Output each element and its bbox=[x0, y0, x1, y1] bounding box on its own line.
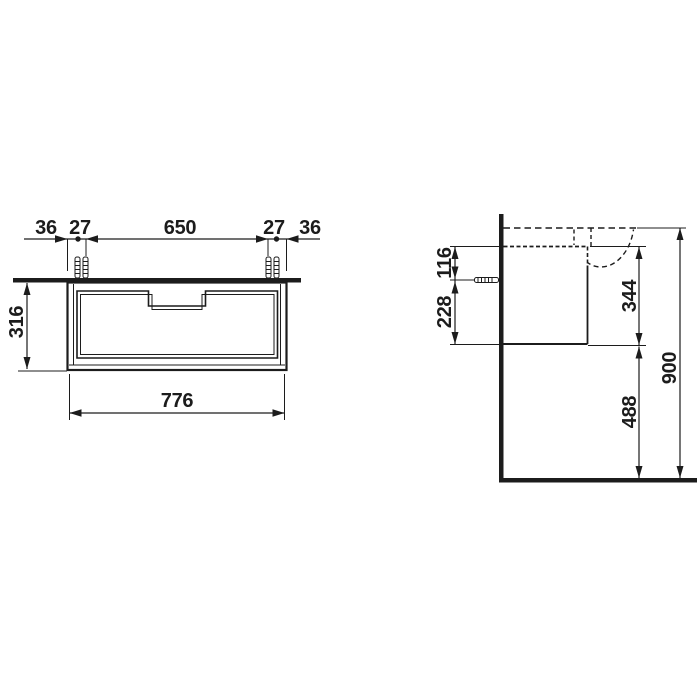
front-view: 36 27 650 27 36 bbox=[6, 217, 321, 420]
wall-anchor-screw-icon bbox=[475, 278, 499, 283]
dim-label-floor-clearance: 488 bbox=[619, 396, 641, 429]
mounting-screws-icon bbox=[75, 257, 279, 278]
dim-label-offset-right: 36 bbox=[299, 217, 321, 239]
body-and-clearance-dimensions: 344 488 bbox=[588, 247, 646, 479]
height-dimension: 316 bbox=[6, 283, 67, 371]
dim-label-offset-left: 36 bbox=[35, 217, 57, 239]
screw-icon bbox=[274, 257, 279, 278]
plug-axis-dot-right bbox=[274, 236, 279, 241]
technical-drawing-canvas: 36 27 650 27 36 bbox=[0, 0, 700, 700]
cabinet-side-profile bbox=[504, 247, 588, 345]
wall-line bbox=[499, 214, 504, 483]
dim-label-plug-gap-right: 27 bbox=[263, 217, 285, 239]
plug-axis-dot-left bbox=[75, 236, 80, 241]
screw-icon bbox=[75, 257, 80, 278]
overall-height-dimension: 900 bbox=[637, 228, 686, 478]
dim-label-height: 316 bbox=[6, 306, 28, 339]
width-dimension: 776 bbox=[70, 374, 285, 420]
dim-label-screw-from-top: 116 bbox=[434, 247, 456, 279]
screw-icon bbox=[83, 257, 88, 278]
dim-label-plug-gap-left: 27 bbox=[69, 217, 91, 239]
dim-label-body-height: 344 bbox=[619, 279, 641, 313]
screw-icon bbox=[266, 257, 271, 278]
floor-line bbox=[499, 478, 697, 483]
dim-label-overall-height: 900 bbox=[659, 352, 681, 385]
vanity-dimension-drawing: 36 27 650 27 36 bbox=[0, 0, 700, 700]
dim-label-screw-from-bottom: 228 bbox=[434, 296, 456, 329]
cabinet-body bbox=[68, 283, 287, 371]
screw-position-dimensions: 116 228 bbox=[434, 247, 499, 345]
dim-label-width: 776 bbox=[161, 390, 194, 412]
dim-label-span-center: 650 bbox=[164, 217, 197, 239]
side-view: 116 228 344 488 900 bbox=[434, 214, 697, 483]
